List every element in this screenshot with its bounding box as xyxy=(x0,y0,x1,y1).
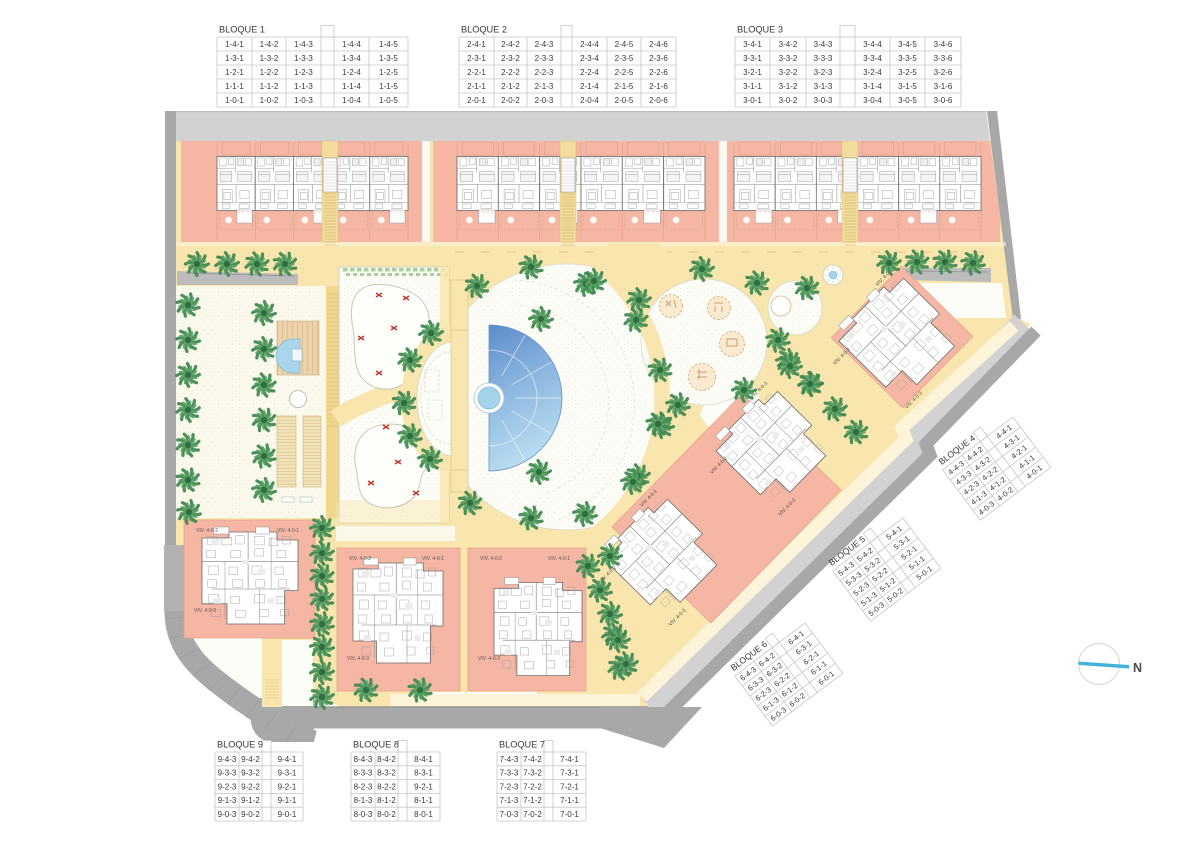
svg-text:1-3-5: 1-3-5 xyxy=(379,54,398,63)
svg-text:1-4-2: 1-4-2 xyxy=(260,40,279,49)
svg-text:9-1-2: 9-1-2 xyxy=(241,796,260,805)
svg-text:8-2-3: 8-2-3 xyxy=(354,782,373,791)
svg-text:2-3-4: 2-3-4 xyxy=(580,54,599,63)
svg-text:1-1-4: 1-1-4 xyxy=(342,82,361,91)
svg-text:7-0-2: 7-0-2 xyxy=(523,810,542,819)
svg-text:BLOQUE 9: BLOQUE 9 xyxy=(217,740,263,750)
svg-text:1-2-4: 1-2-4 xyxy=(342,68,361,77)
svg-text:VIV. 4-0-3: VIV. 4-0-3 xyxy=(478,656,500,662)
svg-text:2-1-3: 2-1-3 xyxy=(535,82,554,91)
svg-text:7-1-3: 7-1-3 xyxy=(500,796,519,805)
svg-text:VIV. 4-0-2: VIV. 4-0-2 xyxy=(196,528,218,534)
svg-text:2-0-5: 2-0-5 xyxy=(615,96,634,105)
svg-text:7-3-1: 7-3-1 xyxy=(560,769,579,778)
svg-text:1-2-3: 1-2-3 xyxy=(294,68,313,77)
svg-text:3-4-2: 3-4-2 xyxy=(779,40,798,49)
svg-text:3-3-2: 3-3-2 xyxy=(779,54,798,63)
svg-text:1-0-4: 1-0-4 xyxy=(342,96,361,105)
svg-text:7-2-3: 7-2-3 xyxy=(500,782,519,791)
svg-text:1-3-2: 1-3-2 xyxy=(260,54,279,63)
svg-text:1-4-3: 1-4-3 xyxy=(294,40,313,49)
svg-text:2-3-5: 2-3-5 xyxy=(615,54,634,63)
svg-text:8-4-3: 8-4-3 xyxy=(354,755,373,764)
svg-text:2-4-6: 2-4-6 xyxy=(649,40,668,49)
svg-text:1-1-1: 1-1-1 xyxy=(225,82,244,91)
svg-text:3-1-3: 3-1-3 xyxy=(814,82,833,91)
svg-text:8-3-2: 8-3-2 xyxy=(377,769,396,778)
svg-text:2-2-3: 2-2-3 xyxy=(535,68,554,77)
svg-text:7-3-3: 7-3-3 xyxy=(500,769,519,778)
svg-text:8-0-3: 8-0-3 xyxy=(354,810,373,819)
svg-text:3-3-3: 3-3-3 xyxy=(814,54,833,63)
svg-text:9-4-3: 9-4-3 xyxy=(218,755,237,764)
svg-text:2-3-3: 2-3-3 xyxy=(535,54,554,63)
svg-text:2-0-1: 2-0-1 xyxy=(467,96,486,105)
svg-text:1-0-3: 1-0-3 xyxy=(294,96,313,105)
svg-text:1-4-5: 1-4-5 xyxy=(379,40,398,49)
svg-text:BLOQUE 1: BLOQUE 1 xyxy=(219,25,265,35)
svg-text:2-3-6: 2-3-6 xyxy=(649,54,668,63)
svg-text:3-4-6: 3-4-6 xyxy=(934,40,953,49)
svg-text:2-1-4: 2-1-4 xyxy=(580,82,599,91)
svg-text:9-2-1: 9-2-1 xyxy=(278,782,297,791)
svg-text:2-0-3: 2-0-3 xyxy=(535,96,554,105)
svg-text:2-4-4: 2-4-4 xyxy=(580,40,599,49)
svg-text:1-1-2: 1-1-2 xyxy=(260,82,279,91)
svg-text:1-1-5: 1-1-5 xyxy=(379,82,398,91)
svg-text:3-0-1: 3-0-1 xyxy=(743,96,762,105)
svg-text:3-1-1: 3-1-1 xyxy=(743,82,762,91)
svg-text:9-1-1: 9-1-1 xyxy=(278,796,297,805)
svg-text:7-0-1: 7-0-1 xyxy=(560,810,579,819)
svg-text:BLOQUE 8: BLOQUE 8 xyxy=(353,740,399,750)
svg-text:2-0-4: 2-0-4 xyxy=(580,96,599,105)
svg-text:3-2-2: 3-2-2 xyxy=(779,68,798,77)
svg-text:3-0-2: 3-0-2 xyxy=(779,96,798,105)
svg-text:1-0-2: 1-0-2 xyxy=(260,96,279,105)
svg-text:3-0-5: 3-0-5 xyxy=(898,96,917,105)
svg-text:8-3-1: 8-3-1 xyxy=(414,769,433,778)
svg-text:3-1-2: 3-1-2 xyxy=(779,82,798,91)
svg-text:7-1-2: 7-1-2 xyxy=(523,796,542,805)
svg-text:8-1-1: 8-1-1 xyxy=(414,796,433,805)
svg-text:9-0-1: 9-0-1 xyxy=(278,810,297,819)
svg-text:7-2-2: 7-2-2 xyxy=(523,782,542,791)
svg-text:BLOQUE 2: BLOQUE 2 xyxy=(461,25,507,35)
svg-text:2-2-6: 2-2-6 xyxy=(649,68,668,77)
svg-text:2-0-6: 2-0-6 xyxy=(649,96,668,105)
svg-text:2-3-1: 2-3-1 xyxy=(467,54,486,63)
svg-text:1-4-4: 1-4-4 xyxy=(342,40,361,49)
svg-text:3-4-1: 3-4-1 xyxy=(743,40,762,49)
svg-text:3-1-6: 3-1-6 xyxy=(934,82,953,91)
svg-text:1-0-5: 1-0-5 xyxy=(379,96,398,105)
svg-text:2-1-2: 2-1-2 xyxy=(501,82,520,91)
svg-text:3-0-3: 3-0-3 xyxy=(814,96,833,105)
svg-text:1-1-3: 1-1-3 xyxy=(294,82,313,91)
svg-text:2-4-1: 2-4-1 xyxy=(467,40,486,49)
svg-text:9-2-2: 9-2-2 xyxy=(241,782,260,791)
svg-text:2-4-5: 2-4-5 xyxy=(615,40,634,49)
svg-text:3-0-6: 3-0-6 xyxy=(934,96,953,105)
svg-text:7-4-3: 7-4-3 xyxy=(500,755,519,764)
svg-text:3-1-5: 3-1-5 xyxy=(898,82,917,91)
svg-text:7-0-3: 7-0-3 xyxy=(500,810,519,819)
svg-text:2-3-2: 2-3-2 xyxy=(501,54,520,63)
svg-text:9-3-3: 9-3-3 xyxy=(218,769,237,778)
svg-text:1-2-2: 1-2-2 xyxy=(260,68,279,77)
svg-text:1-0-1: 1-0-1 xyxy=(225,96,244,105)
svg-text:8-0-1: 8-0-1 xyxy=(414,810,433,819)
svg-text:8-2-2: 8-2-2 xyxy=(377,782,396,791)
svg-text:9-0-3: 9-0-3 xyxy=(218,810,237,819)
svg-text:3-2-6: 3-2-6 xyxy=(934,68,953,77)
svg-text:VIV. 4-0-2: VIV. 4-0-2 xyxy=(349,556,371,562)
svg-text:VIV. 4-0-2: VIV. 4-0-2 xyxy=(480,556,502,562)
svg-text:3-2-3: 3-2-3 xyxy=(814,68,833,77)
svg-text:3-3-4: 3-3-4 xyxy=(863,54,882,63)
svg-text:3-4-4: 3-4-4 xyxy=(863,40,882,49)
svg-text:2-1-1: 2-1-1 xyxy=(467,82,486,91)
svg-text:1-3-4: 1-3-4 xyxy=(342,54,361,63)
svg-text:8-1-3: 8-1-3 xyxy=(354,796,373,805)
svg-text:8-0-2: 8-0-2 xyxy=(377,810,396,819)
svg-text:8-1-2: 8-1-2 xyxy=(377,796,396,805)
svg-text:VIV. 4-0-3: VIV. 4-0-3 xyxy=(194,608,216,614)
svg-text:3-4-5: 3-4-5 xyxy=(898,40,917,49)
svg-text:VIV. 4-0-1: VIV. 4-0-1 xyxy=(548,556,570,562)
svg-text:N: N xyxy=(1133,661,1142,675)
svg-text:2-0-2: 2-0-2 xyxy=(501,96,520,105)
svg-text:3-2-4: 3-2-4 xyxy=(863,68,882,77)
svg-text:9-1-3: 9-1-3 xyxy=(218,796,237,805)
svg-text:2-2-1: 2-2-1 xyxy=(467,68,486,77)
svg-text:3-2-5: 3-2-5 xyxy=(898,68,917,77)
svg-text:1-2-5: 1-2-5 xyxy=(379,68,398,77)
svg-text:3-3-5: 3-3-5 xyxy=(898,54,917,63)
svg-text:7-2-1: 7-2-1 xyxy=(560,782,579,791)
svg-text:8-3-3: 8-3-3 xyxy=(354,769,373,778)
svg-text:3-3-6: 3-3-6 xyxy=(934,54,953,63)
svg-text:7-4-1: 7-4-1 xyxy=(560,755,579,764)
svg-text:3-0-4: 3-0-4 xyxy=(863,96,882,105)
svg-text:8-4-1: 8-4-1 xyxy=(414,755,433,764)
svg-text:2-4-3: 2-4-3 xyxy=(535,40,554,49)
svg-text:VIV. 4-0-1: VIV. 4-0-1 xyxy=(422,556,444,562)
svg-text:3-3-1: 3-3-1 xyxy=(743,54,762,63)
svg-text:2-4-2: 2-4-2 xyxy=(501,40,520,49)
svg-text:2-2-2: 2-2-2 xyxy=(501,68,520,77)
svg-text:1-4-1: 1-4-1 xyxy=(225,40,244,49)
svg-text:VIV. 4-0-1: VIV. 4-0-1 xyxy=(277,528,299,534)
svg-text:2-2-4: 2-2-4 xyxy=(580,68,599,77)
svg-text:VIV. 4-0-3: VIV. 4-0-3 xyxy=(347,656,369,662)
svg-text:2-2-5: 2-2-5 xyxy=(615,68,634,77)
svg-text:1-3-3: 1-3-3 xyxy=(294,54,313,63)
svg-text:9-4-1: 9-4-1 xyxy=(278,755,297,764)
svg-text:BLOQUE 3: BLOQUE 3 xyxy=(737,25,783,35)
svg-text:2-1-6: 2-1-6 xyxy=(649,82,668,91)
svg-text:3-4-3: 3-4-3 xyxy=(814,40,833,49)
svg-text:3-1-4: 3-1-4 xyxy=(863,82,882,91)
svg-text:8-4-2: 8-4-2 xyxy=(377,755,396,764)
svg-text:1-2-1: 1-2-1 xyxy=(225,68,244,77)
svg-text:9-2-1: 9-2-1 xyxy=(414,782,433,791)
svg-text:9-2-3: 9-2-3 xyxy=(218,782,237,791)
svg-text:9-3-1: 9-3-1 xyxy=(278,769,297,778)
svg-text:9-3-2: 9-3-2 xyxy=(241,769,260,778)
svg-text:9-4-2: 9-4-2 xyxy=(241,755,260,764)
svg-text:7-1-1: 7-1-1 xyxy=(560,796,579,805)
svg-text:3-2-1: 3-2-1 xyxy=(743,68,762,77)
svg-text:1-3-1: 1-3-1 xyxy=(225,54,244,63)
svg-text:BLOQUE 7: BLOQUE 7 xyxy=(499,740,545,750)
svg-text:2-1-5: 2-1-5 xyxy=(615,82,634,91)
svg-text:7-4-2: 7-4-2 xyxy=(523,755,542,764)
svg-text:7-3-2: 7-3-2 xyxy=(523,769,542,778)
svg-text:9-0-2: 9-0-2 xyxy=(241,810,260,819)
